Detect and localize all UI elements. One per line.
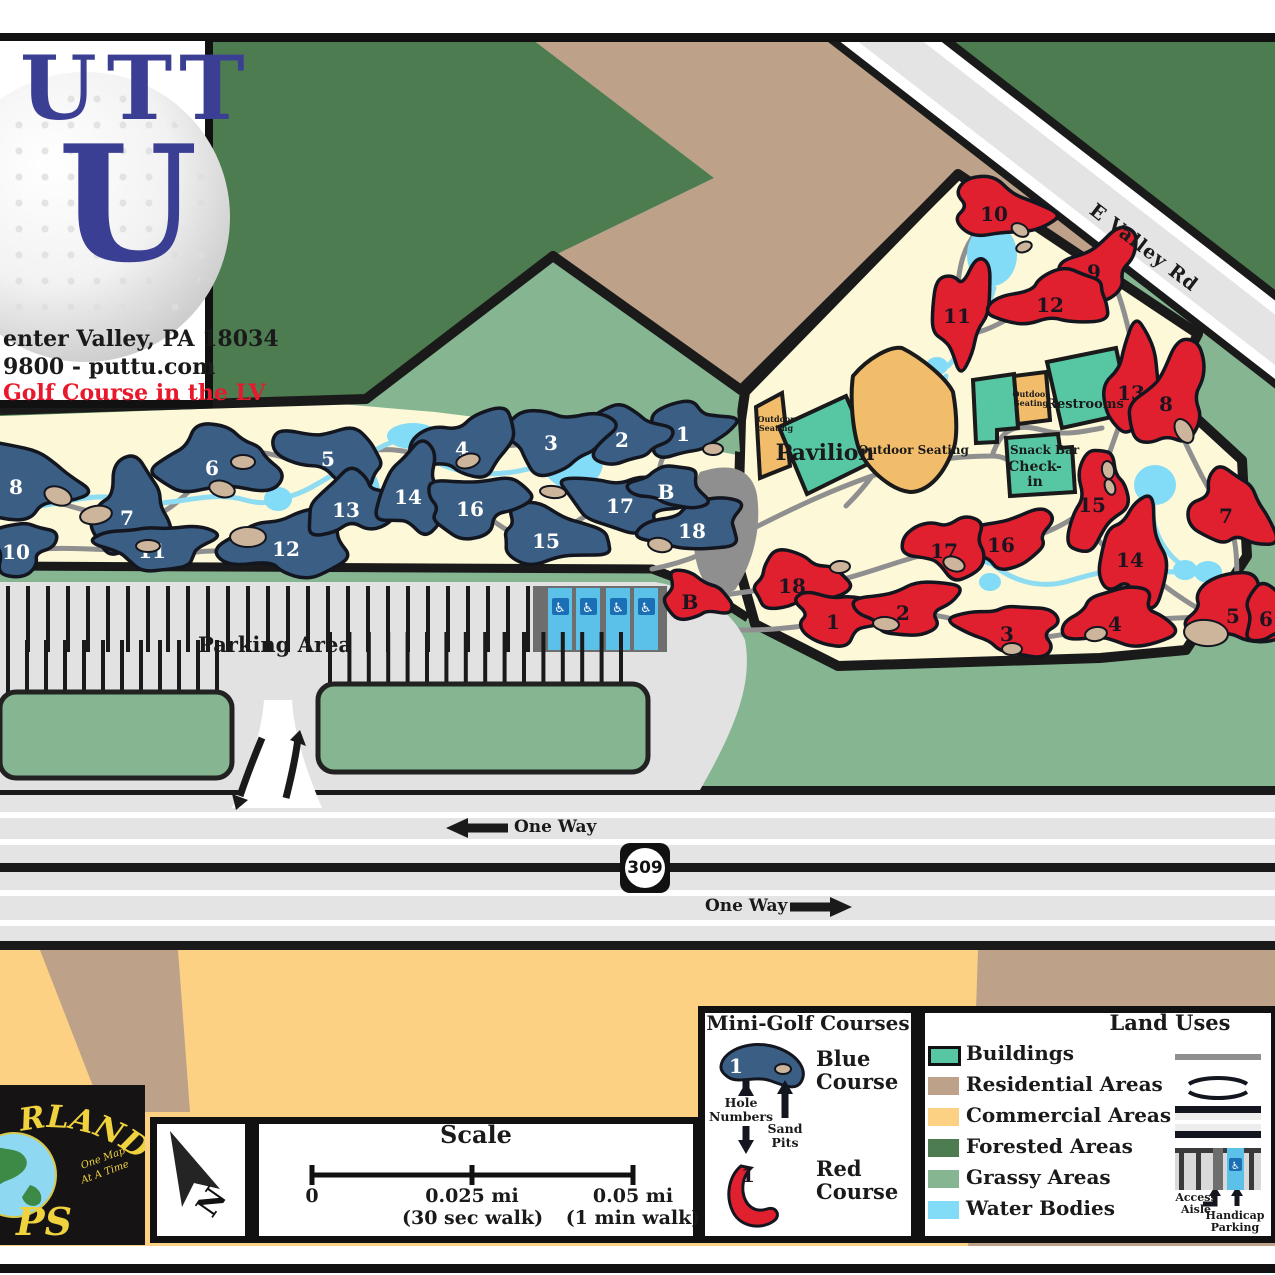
scale-tick-end: 0.05 mi xyxy=(573,1186,693,1207)
check-in-label: Check-in xyxy=(1008,460,1062,490)
wheelchair-icon: ♿ xyxy=(554,601,566,616)
brand-name-u: U xyxy=(58,110,198,298)
handicap-parking-label: Handicap Parking xyxy=(1204,1210,1266,1234)
hole-number: 16 xyxy=(456,497,484,521)
handicap-parking-symbol: ♿ xyxy=(1175,1148,1261,1190)
parking-area-label: Parking Area xyxy=(195,634,355,657)
overland-maps-art: RLAND PS One Map At A Time xyxy=(0,1085,145,1245)
hole-number: 1 xyxy=(826,610,840,634)
sand-pit xyxy=(830,560,851,574)
swatch-grassy xyxy=(928,1170,959,1188)
hole-number: 10 xyxy=(2,540,30,564)
blue-course-label: Blue Course xyxy=(816,1048,911,1093)
hole-number: B xyxy=(658,480,675,504)
top-margin xyxy=(0,0,1275,33)
north-arrow-art: N xyxy=(150,1117,252,1243)
hole-number: 4 xyxy=(1108,612,1122,636)
hole-number: 5 xyxy=(321,447,335,471)
sand-pit xyxy=(136,540,160,552)
red-course-label: Red Course xyxy=(816,1158,911,1203)
hole-number: 5 xyxy=(1226,604,1240,628)
wheelchair-icon: ♿ xyxy=(582,601,594,616)
outdoor-seating-main-label: Outdoor Seating xyxy=(858,444,958,457)
scale-tick-mid-sub: (30 sec walk) xyxy=(402,1208,542,1229)
path-symbol xyxy=(1175,1054,1261,1060)
hole-number: 12 xyxy=(1036,293,1064,317)
scale-tick-end-sub: (1 min walk) xyxy=(563,1208,703,1229)
sand-pits-label: Sand Pits xyxy=(760,1122,810,1149)
parking-island-west xyxy=(0,692,232,778)
swatch-buildings xyxy=(928,1046,961,1066)
hole-number: 14 xyxy=(394,485,422,509)
hole-number: 12 xyxy=(272,537,300,561)
snack-bar-label: Snack Bar xyxy=(1010,444,1072,457)
hole-number: 14 xyxy=(1116,548,1144,572)
sand-pit xyxy=(231,455,255,469)
parking-lot: ♿ ♿ ♿ ♿ xyxy=(0,582,747,810)
legend-item-commercial: Commercial Areas xyxy=(966,1105,1171,1127)
one-way-label-lower: One Way xyxy=(705,897,787,915)
map-page: ♿ ♿ ♿ ♿ 12345678101112131415161718B 1091… xyxy=(0,0,1275,1275)
wheelchair-icon: ♿ xyxy=(640,601,652,616)
bottom-border xyxy=(0,1264,1275,1273)
legend-red-hole-number: 1 xyxy=(741,1163,755,1187)
legend-blue-hole-number: 1 xyxy=(729,1054,743,1078)
hole-number: 17 xyxy=(606,494,634,518)
legend-item-buildings: Buildings xyxy=(966,1043,1074,1065)
contact-line: 9800 - puttu.com xyxy=(3,356,215,380)
wheelchair-icon: ♿ xyxy=(1231,1161,1240,1172)
hole-number: 6 xyxy=(1259,607,1273,631)
hole-number: 7 xyxy=(120,506,134,530)
scale-tick-0: 0 xyxy=(292,1186,332,1207)
legend-item-residential: Residential Areas xyxy=(966,1074,1163,1096)
scale-tick-mid: 0.025 mi xyxy=(412,1186,532,1207)
hole-number: 8 xyxy=(1159,392,1173,416)
swatch-commercial xyxy=(928,1108,959,1126)
sand-pit xyxy=(703,443,723,455)
hole-number: 7 xyxy=(1219,504,1233,528)
bridge-symbol xyxy=(1189,1078,1247,1098)
parking-island-east xyxy=(318,684,648,772)
hole-number: 6 xyxy=(205,456,219,480)
legend-item-water: Water Bodies xyxy=(966,1198,1115,1220)
outdoor-seating-small-label: Outdoor Seating xyxy=(756,415,796,432)
tagline-line: Golf Course in the LV xyxy=(3,382,266,406)
hole-number: 18 xyxy=(678,519,706,543)
land-uses-title: Land Uses xyxy=(1060,1012,1275,1035)
mini-golf-legend-title: Mini-Golf Courses xyxy=(698,1013,918,1035)
wheelchair-icon: ♿ xyxy=(612,601,624,616)
hole-number: 1 xyxy=(676,422,690,446)
hole-number: 15 xyxy=(1078,493,1106,517)
sand-pit xyxy=(230,527,266,547)
swatch-forested xyxy=(928,1139,959,1157)
restrooms-label: Restrooms xyxy=(1040,398,1130,412)
sand-pit xyxy=(1002,643,1022,655)
route-309-number: 309 xyxy=(620,858,670,878)
one-way-label-upper: One Way xyxy=(514,818,596,836)
address-line: enter Valley, PA 18034 xyxy=(3,328,279,352)
legend-sand-pit xyxy=(775,1064,791,1074)
hole-number: 10 xyxy=(980,202,1008,226)
swatch-water xyxy=(928,1201,959,1219)
access-aisle-column xyxy=(1213,1148,1223,1190)
legend-item-forested: Forested Areas xyxy=(966,1136,1133,1158)
road-symbol xyxy=(1175,1106,1261,1138)
hole-number: 3 xyxy=(544,431,558,455)
hole-number: 8 xyxy=(9,475,23,499)
hole-number: 2 xyxy=(615,428,629,452)
route-309-shield: 309 xyxy=(620,843,670,893)
land-uses-symbols: ♿ xyxy=(1175,1050,1270,1195)
hole-number: 11 xyxy=(943,304,971,328)
swatch-residential xyxy=(928,1077,959,1095)
hole-number: 13 xyxy=(332,498,360,522)
hole-number: 15 xyxy=(532,529,560,553)
hole-number: 16 xyxy=(987,533,1015,557)
north-letter: N xyxy=(190,1181,234,1224)
legend-item-grassy: Grassy Areas xyxy=(966,1167,1111,1189)
overland-bottom-text: PS xyxy=(15,1199,72,1244)
hole-number: B xyxy=(682,590,699,614)
hole-numbers-label: Hole Numbers xyxy=(706,1096,776,1123)
